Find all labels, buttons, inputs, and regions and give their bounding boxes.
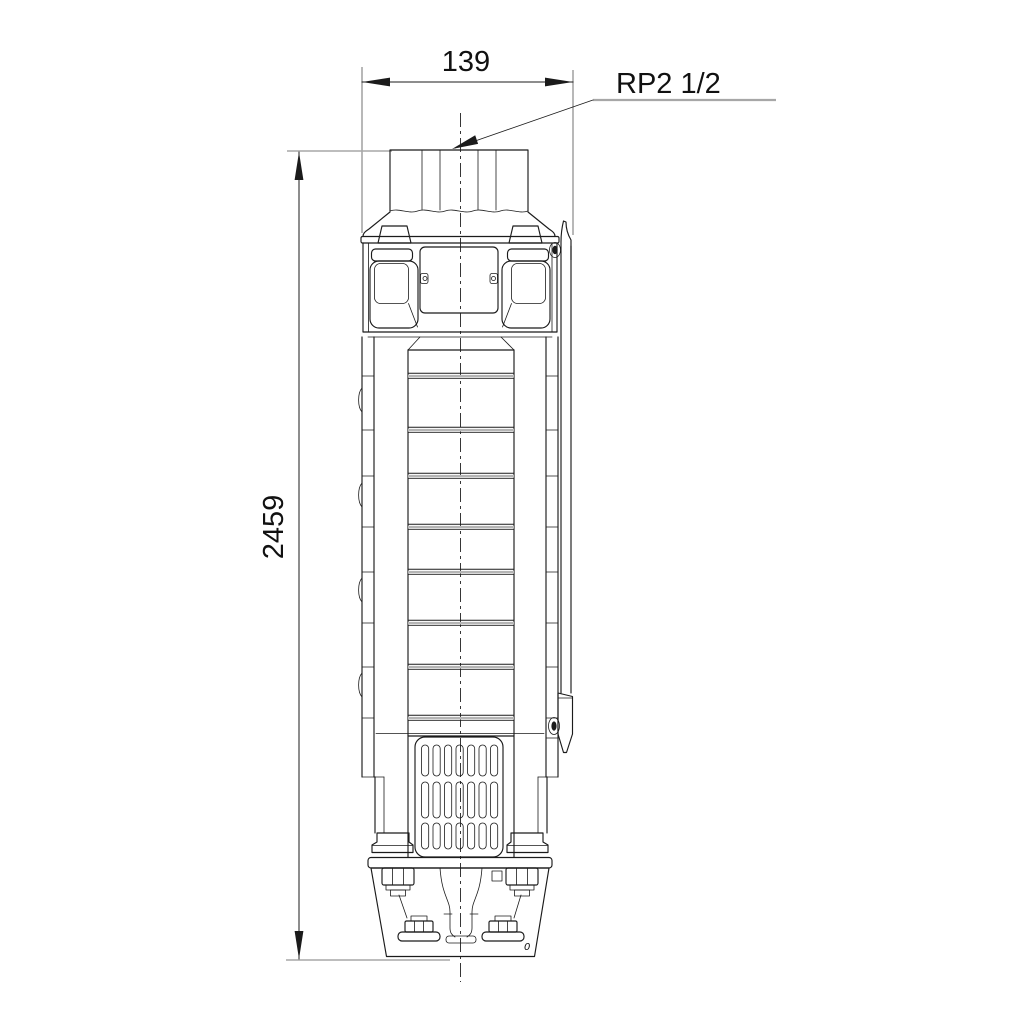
arrowhead-left-icon <box>362 78 390 87</box>
leader-arrowhead-icon <box>452 135 478 149</box>
strap-right <box>546 337 558 777</box>
pump-dimension-drawing: 139 RP2 1/2 2459 <box>0 0 1024 1024</box>
stud-bolt-left <box>382 868 414 896</box>
threaded-connection <box>390 150 528 212</box>
arrowhead-up-icon <box>295 152 304 180</box>
cable-clamp-right <box>502 226 550 328</box>
nut-right <box>482 916 524 941</box>
drawing-canvas: 139 RP2 1/2 2459 <box>0 0 1024 1024</box>
width-dimension-label: 139 <box>442 46 490 78</box>
discharge-head <box>361 212 559 350</box>
valve-panel <box>420 247 498 313</box>
arrowhead-down-icon <box>295 931 304 959</box>
nut-left <box>398 916 440 941</box>
pump-outline: 0 <box>359 113 573 982</box>
chamber-stack <box>362 350 558 736</box>
connection-callout: RP2 1/2 <box>452 68 776 149</box>
connection-label: RP2 1/2 <box>616 68 721 100</box>
height-dimension-label: 2459 <box>258 495 290 560</box>
foot-right <box>507 833 548 853</box>
motor-bracket: 0 <box>368 858 552 957</box>
strainer-slots <box>422 745 498 849</box>
foot-left <box>372 833 413 853</box>
cable-clamp-left <box>370 226 418 328</box>
strap-left <box>359 337 374 777</box>
stray-zero-mark: 0 <box>524 942 530 953</box>
support-columns <box>362 736 558 857</box>
arrowhead-right-icon <box>545 78 573 87</box>
stud-bolt-right <box>506 868 538 896</box>
suction-strainer <box>415 737 503 857</box>
